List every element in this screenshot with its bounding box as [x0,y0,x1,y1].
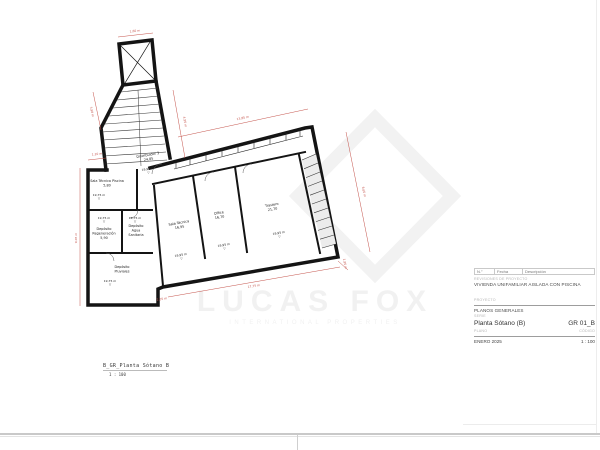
titleblock-bottom-border [463,424,596,425]
drawing-sheet: LUCAS FOX INTERNATIONAL PROPERTIES [0,0,600,450]
plan-name: Planta Sótano (B) [474,320,525,327]
room-label: DepósitoRegeneración5,90 [92,227,115,240]
elevation-marker: 19,75 m▽ [129,216,142,224]
room-label: Sala Técnica Piscina5,80 [90,179,124,187]
footer-rule-2 [0,436,600,437]
room-label: Office16,70 [214,210,225,220]
caption-underline [103,370,167,371]
plan-caption: B_GR_Planta Sótano B 1 : 100 [103,363,169,377]
floor-plan: Distribuidor 324,85Sala Técnica Piscina5… [0,0,600,450]
revision-table-header: N.° Fecha Descripción [474,268,595,275]
elevation-marker: 19,75 m▽ [98,216,111,224]
room-label: DepósitoAguaSanitaria [128,224,143,237]
rev-col-date: Fecha [495,269,523,274]
dimension-label: 1,10 m [91,152,102,157]
rev-col-desc: Descripción [523,269,594,274]
project-label: PROYECTO [474,298,595,302]
series-name: PLANOS GENERALES [474,308,595,313]
caption-title: B_GR_Planta Sótano B [103,363,169,369]
dimension-label: 17,75 m [247,283,260,289]
sheet-right-border [596,0,597,433]
elevation-marker: 19,95 m▽ [141,166,155,176]
dimension-label: 1,60 m [129,28,140,33]
dimension-label: 1,95 m [342,258,348,269]
rev-col-no: N.° [475,269,495,274]
footer-divider [297,435,298,450]
title-block: N.° Fecha Descripción REVISIONES DE PROY… [474,268,595,344]
elevation-marker: 19,75 m▽ [93,193,106,201]
dimension-label: 9,05 m [74,233,78,244]
revisions-label: REVISIONES DE PROYECTO [474,277,595,281]
room-label: Trastero21,70 [264,202,280,213]
elevation-marker: 19,95 m▽ [272,230,286,240]
plan-label: PLANO [474,329,487,333]
project-name: VIVIENDA UNIFAMILIAR AISLADA CON PISCINA [474,282,595,287]
sheet-date: ENERO 2025 [474,339,502,344]
sheet-scale: 1 : 100 [581,339,595,344]
caption-scale: 1 : 100 [109,372,169,377]
dimension-label: 2,05 m [156,296,167,302]
dimension-label: 3,90 m [89,106,95,117]
code-label: CÓDIGO [579,329,595,333]
room-label: Sala Técnica16,95 [168,219,190,231]
elevation-marker: 19,95 m▽ [174,252,188,262]
divider [474,305,595,306]
footer-rule [0,433,600,435]
room-label: DepósitoPluviales [114,265,129,273]
elevation-marker: 19,75 m▽ [104,279,117,287]
elevation-marker: 19,95 m▽ [217,242,231,252]
plan-code: GR 01_B [568,320,595,327]
dimension-label: 4,95 m [182,116,188,127]
dimension-label: 8,65 m [361,186,367,197]
dimension-label: 13,85 m [236,115,249,122]
